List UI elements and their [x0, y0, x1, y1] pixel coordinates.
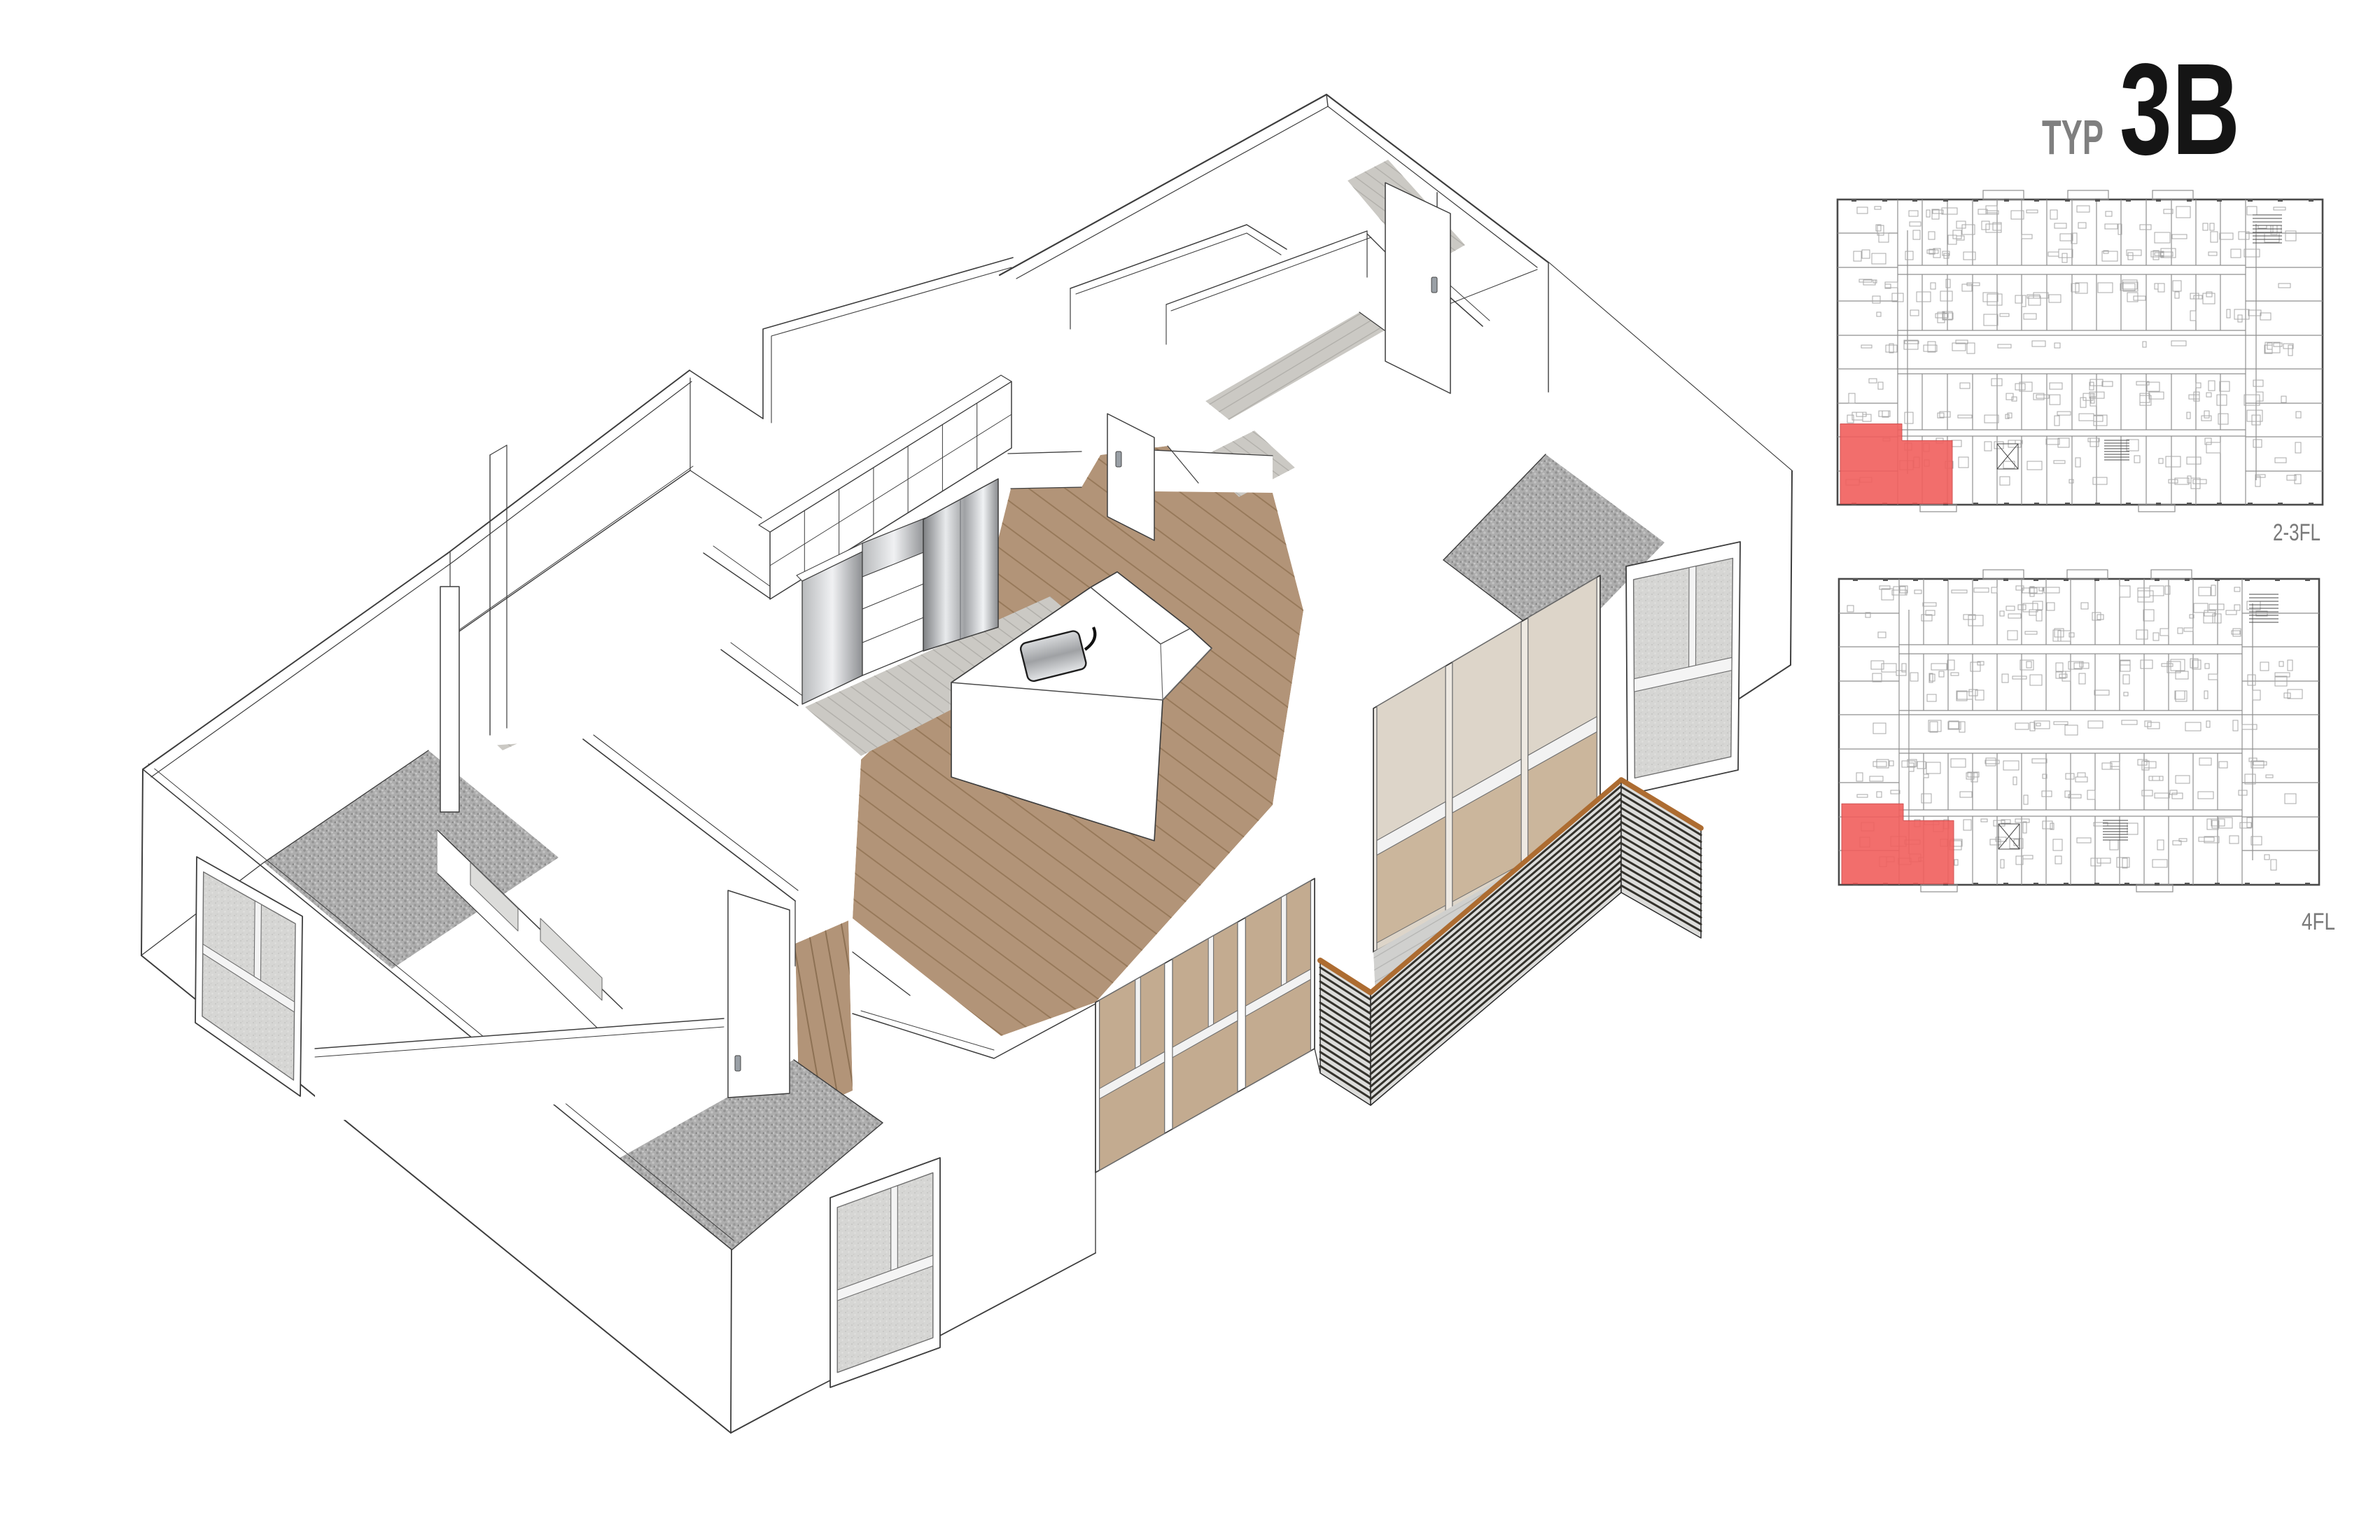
svg-text:4FL: 4FL — [2302, 909, 2335, 935]
svg-text:TYP: TYP — [2042, 110, 2103, 164]
svg-text:2-3FL: 2-3FL — [2273, 519, 2320, 546]
svg-text:3B: 3B — [2120, 37, 2240, 182]
